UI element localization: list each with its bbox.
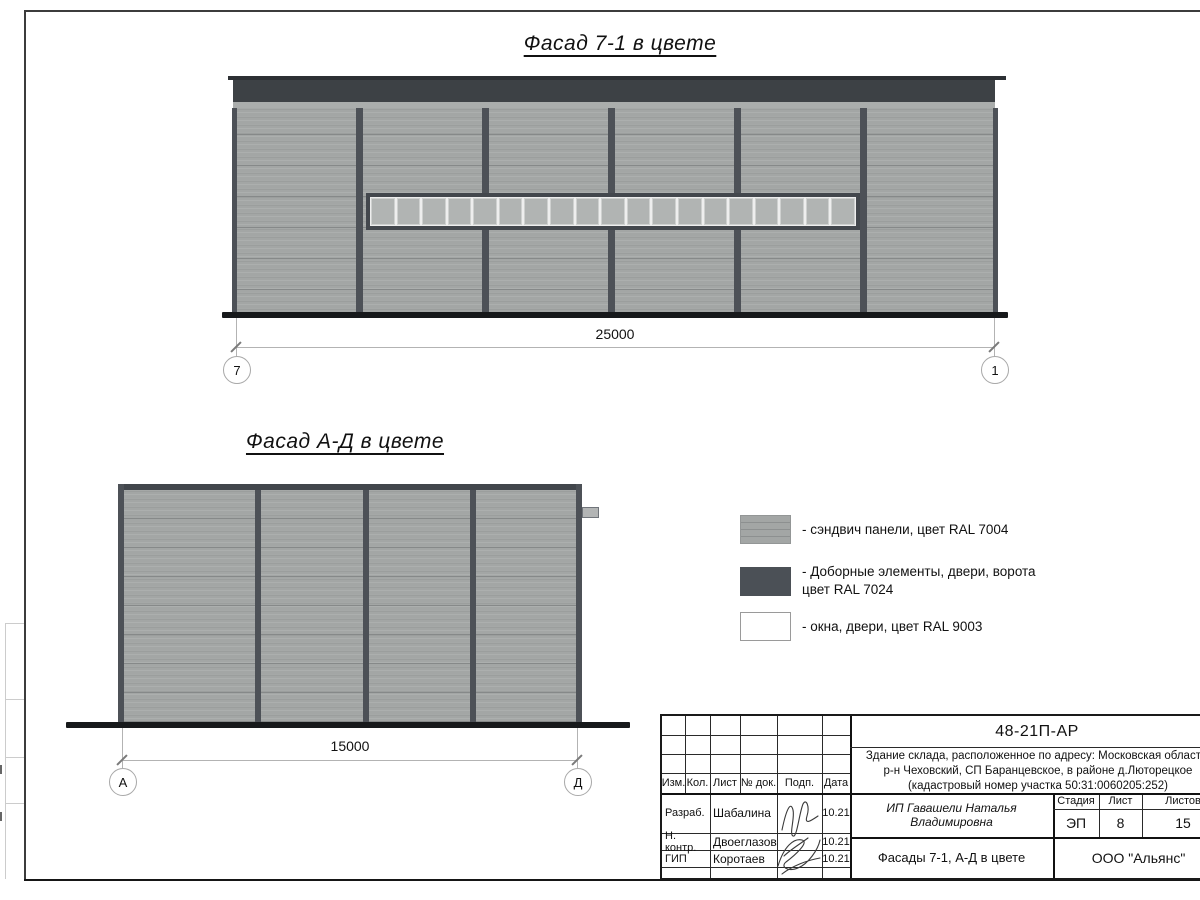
dimension-line — [236, 347, 994, 348]
signature-scribble — [774, 826, 824, 878]
tb-company: ООО "Альянс" — [1053, 837, 1200, 878]
tb-date-nkontr: 10.21 — [822, 833, 850, 850]
tb-col-dok: № док. — [740, 773, 777, 793]
facade-a-d-title: Фасад А-Д в цвете — [195, 430, 495, 454]
window-pane — [704, 198, 728, 225]
tb-col-kol: Кол. — [685, 773, 710, 793]
axis-label: 7 — [233, 363, 240, 378]
margin-divider — [5, 699, 24, 700]
tb-date-razrab: 10.21 — [822, 793, 850, 833]
tb-col-izm: Изм. — [662, 773, 685, 793]
legend-label-line2: цвет RAL 7024 — [802, 581, 1036, 599]
tb-col-data: Дата — [822, 773, 850, 793]
tb-role-gip: ГИП — [662, 850, 710, 867]
margin-divider — [5, 803, 24, 804]
tb-rule — [662, 735, 850, 736]
window-pane — [524, 198, 548, 225]
window-pane — [627, 198, 651, 225]
tb-role-nkontr: Н. контр. — [662, 833, 710, 850]
tb-name-razrab: Шабалина — [710, 793, 777, 833]
tb-date-gip: 10.21 — [822, 850, 850, 867]
window-pane — [397, 198, 421, 225]
window-pane — [729, 198, 753, 225]
facade-7-1-mullion — [356, 108, 363, 312]
extension-line — [577, 728, 578, 768]
window-pane — [601, 198, 625, 225]
window-pane — [652, 198, 676, 225]
tb-name-gip: Коротаев — [710, 850, 777, 867]
axis-marker-a: А — [109, 768, 137, 796]
window-pane — [422, 198, 446, 225]
tb-sheets-header: Листов — [1142, 793, 1200, 809]
window-band-panes — [370, 197, 856, 226]
axis-label: Д — [574, 775, 583, 790]
legend-item-panels: - сэндвич панели, цвет RAL 7004 — [740, 515, 1008, 544]
tb-rule — [662, 754, 850, 755]
window-pane — [678, 198, 702, 225]
sheet-frame-left — [24, 10, 26, 881]
facade-a-d-mullion — [255, 490, 261, 722]
axis-marker-7: 7 — [223, 356, 251, 384]
project-line1: Здание склада, расположенное по адресу: … — [852, 749, 1200, 764]
tb-sheet-value: 8 — [1099, 809, 1142, 837]
window-pane — [755, 198, 779, 225]
facade-7-1-dimension: 25000 — [565, 326, 665, 342]
axis-marker-d: Д — [564, 768, 592, 796]
window-pane — [371, 198, 395, 225]
axis-label: 1 — [991, 363, 998, 378]
project-line3: (кадастровый номер участка 50:31:0060205… — [852, 779, 1200, 794]
tb-col-list: Лист — [710, 773, 740, 793]
extension-line — [236, 318, 237, 358]
margin-text-mark — [0, 765, 2, 774]
facade-7-1-base — [222, 312, 1008, 318]
margin-divider — [5, 757, 24, 758]
facade-7-1-corner-right — [993, 108, 998, 312]
tb-role-razrab: Разраб. — [662, 793, 710, 833]
facade-7-1-mullion — [860, 108, 867, 312]
axis-marker-1: 1 — [981, 356, 1009, 384]
window-pane — [499, 198, 523, 225]
margin-text-mark — [0, 812, 2, 821]
tb-client: ИП Гавашели Наталья Владимировна — [850, 793, 1053, 837]
legend-swatch-ral7004 — [740, 515, 791, 544]
extension-line — [122, 728, 123, 768]
facade-a-d-dimension: 15000 — [300, 738, 400, 754]
facade-a-d-base — [66, 722, 630, 728]
tb-doc-number: 48-21П-АР — [850, 716, 1200, 747]
legend-label: - Доборные элементы, двери, ворота цвет … — [802, 563, 1036, 599]
window-pane — [831, 198, 855, 225]
window-pane — [576, 198, 600, 225]
margin-column-line — [5, 623, 6, 879]
panel-joints — [124, 490, 576, 722]
title-block: Изм. Кол. Лист № док. Подп. Дата Разраб.… — [660, 714, 1200, 880]
window-pane — [448, 198, 472, 225]
legend-label: - окна, двери, цвет RAL 9003 — [802, 618, 982, 636]
tb-sheet-title: Фасады 7-1, А-Д в цвете — [850, 837, 1053, 878]
project-line2: р-н Чеховский, СП Баранцевское, в районе… — [852, 764, 1200, 779]
tb-sheet-header: Лист — [1099, 793, 1142, 809]
dimension-line — [122, 760, 577, 761]
facade-a-d-wall-outlet — [582, 507, 599, 518]
tb-sheets-value: 15 — [1142, 809, 1200, 837]
facade-7-1-corner-left — [232, 108, 237, 312]
sheet-frame-top — [24, 10, 1200, 12]
tb-name-nkontr: Двоеглазов — [710, 833, 777, 850]
tb-col-podp: Подп. — [777, 773, 822, 793]
window-pane — [806, 198, 830, 225]
facade-7-1-window-band — [366, 193, 860, 230]
tb-stage-value: ЭП — [1053, 809, 1099, 837]
facade-7-1-dark-band — [233, 80, 995, 102]
legend-label-line1: - Доборные элементы, двери, ворота — [802, 563, 1036, 581]
legend-item-windows: - окна, двери, цвет RAL 9003 — [740, 612, 982, 641]
facade-7-1-title: Фасад 7-1 в цвете — [430, 32, 810, 56]
legend-label: - сэндвич панели, цвет RAL 7004 — [802, 521, 1008, 539]
legend-swatch-ral7024 — [740, 567, 791, 596]
legend-item-doborные: - Доборные элементы, двери, ворота цвет … — [740, 563, 1036, 599]
window-pane — [550, 198, 574, 225]
legend-swatch-ral9003 — [740, 612, 791, 641]
tb-project-description: Здание склада, расположенное по адресу: … — [852, 747, 1200, 793]
facade-a-d-mullion — [470, 490, 476, 722]
extension-line — [994, 318, 995, 358]
margin-divider — [5, 623, 24, 624]
window-pane — [780, 198, 804, 225]
drawing-sheet: { "facade_7_1": { "title": "Фасад 7-1 в … — [0, 0, 1200, 900]
window-pane — [473, 198, 497, 225]
tb-stage-header: Стадия — [1053, 793, 1099, 809]
axis-label: А — [119, 775, 128, 790]
facade-a-d-frame-right — [576, 484, 582, 722]
facade-a-d-mullion — [363, 490, 369, 722]
facade-a-d-wall — [124, 490, 576, 722]
